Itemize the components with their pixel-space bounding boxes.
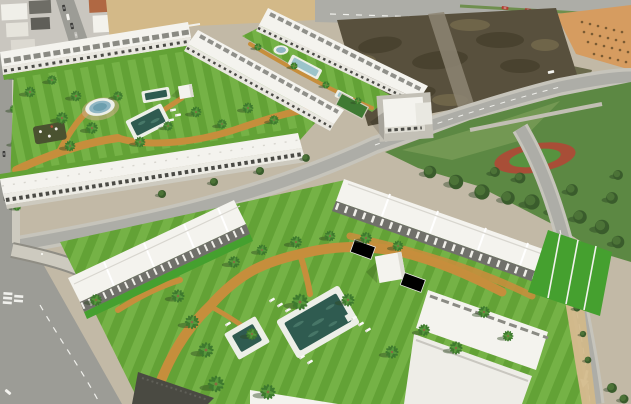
building-wing [415, 102, 432, 125]
town-house [6, 22, 29, 37]
parked-car [3, 151, 6, 157]
town-house [1, 3, 28, 20]
mid-round-pond [274, 45, 289, 55]
show-building [370, 92, 434, 142]
aerial-photo [0, 0, 631, 404]
town-roof-dark [31, 17, 51, 30]
town-roof-gray [29, 0, 52, 14]
pond-water [276, 47, 286, 53]
aerial-photo-stage [0, 0, 631, 404]
